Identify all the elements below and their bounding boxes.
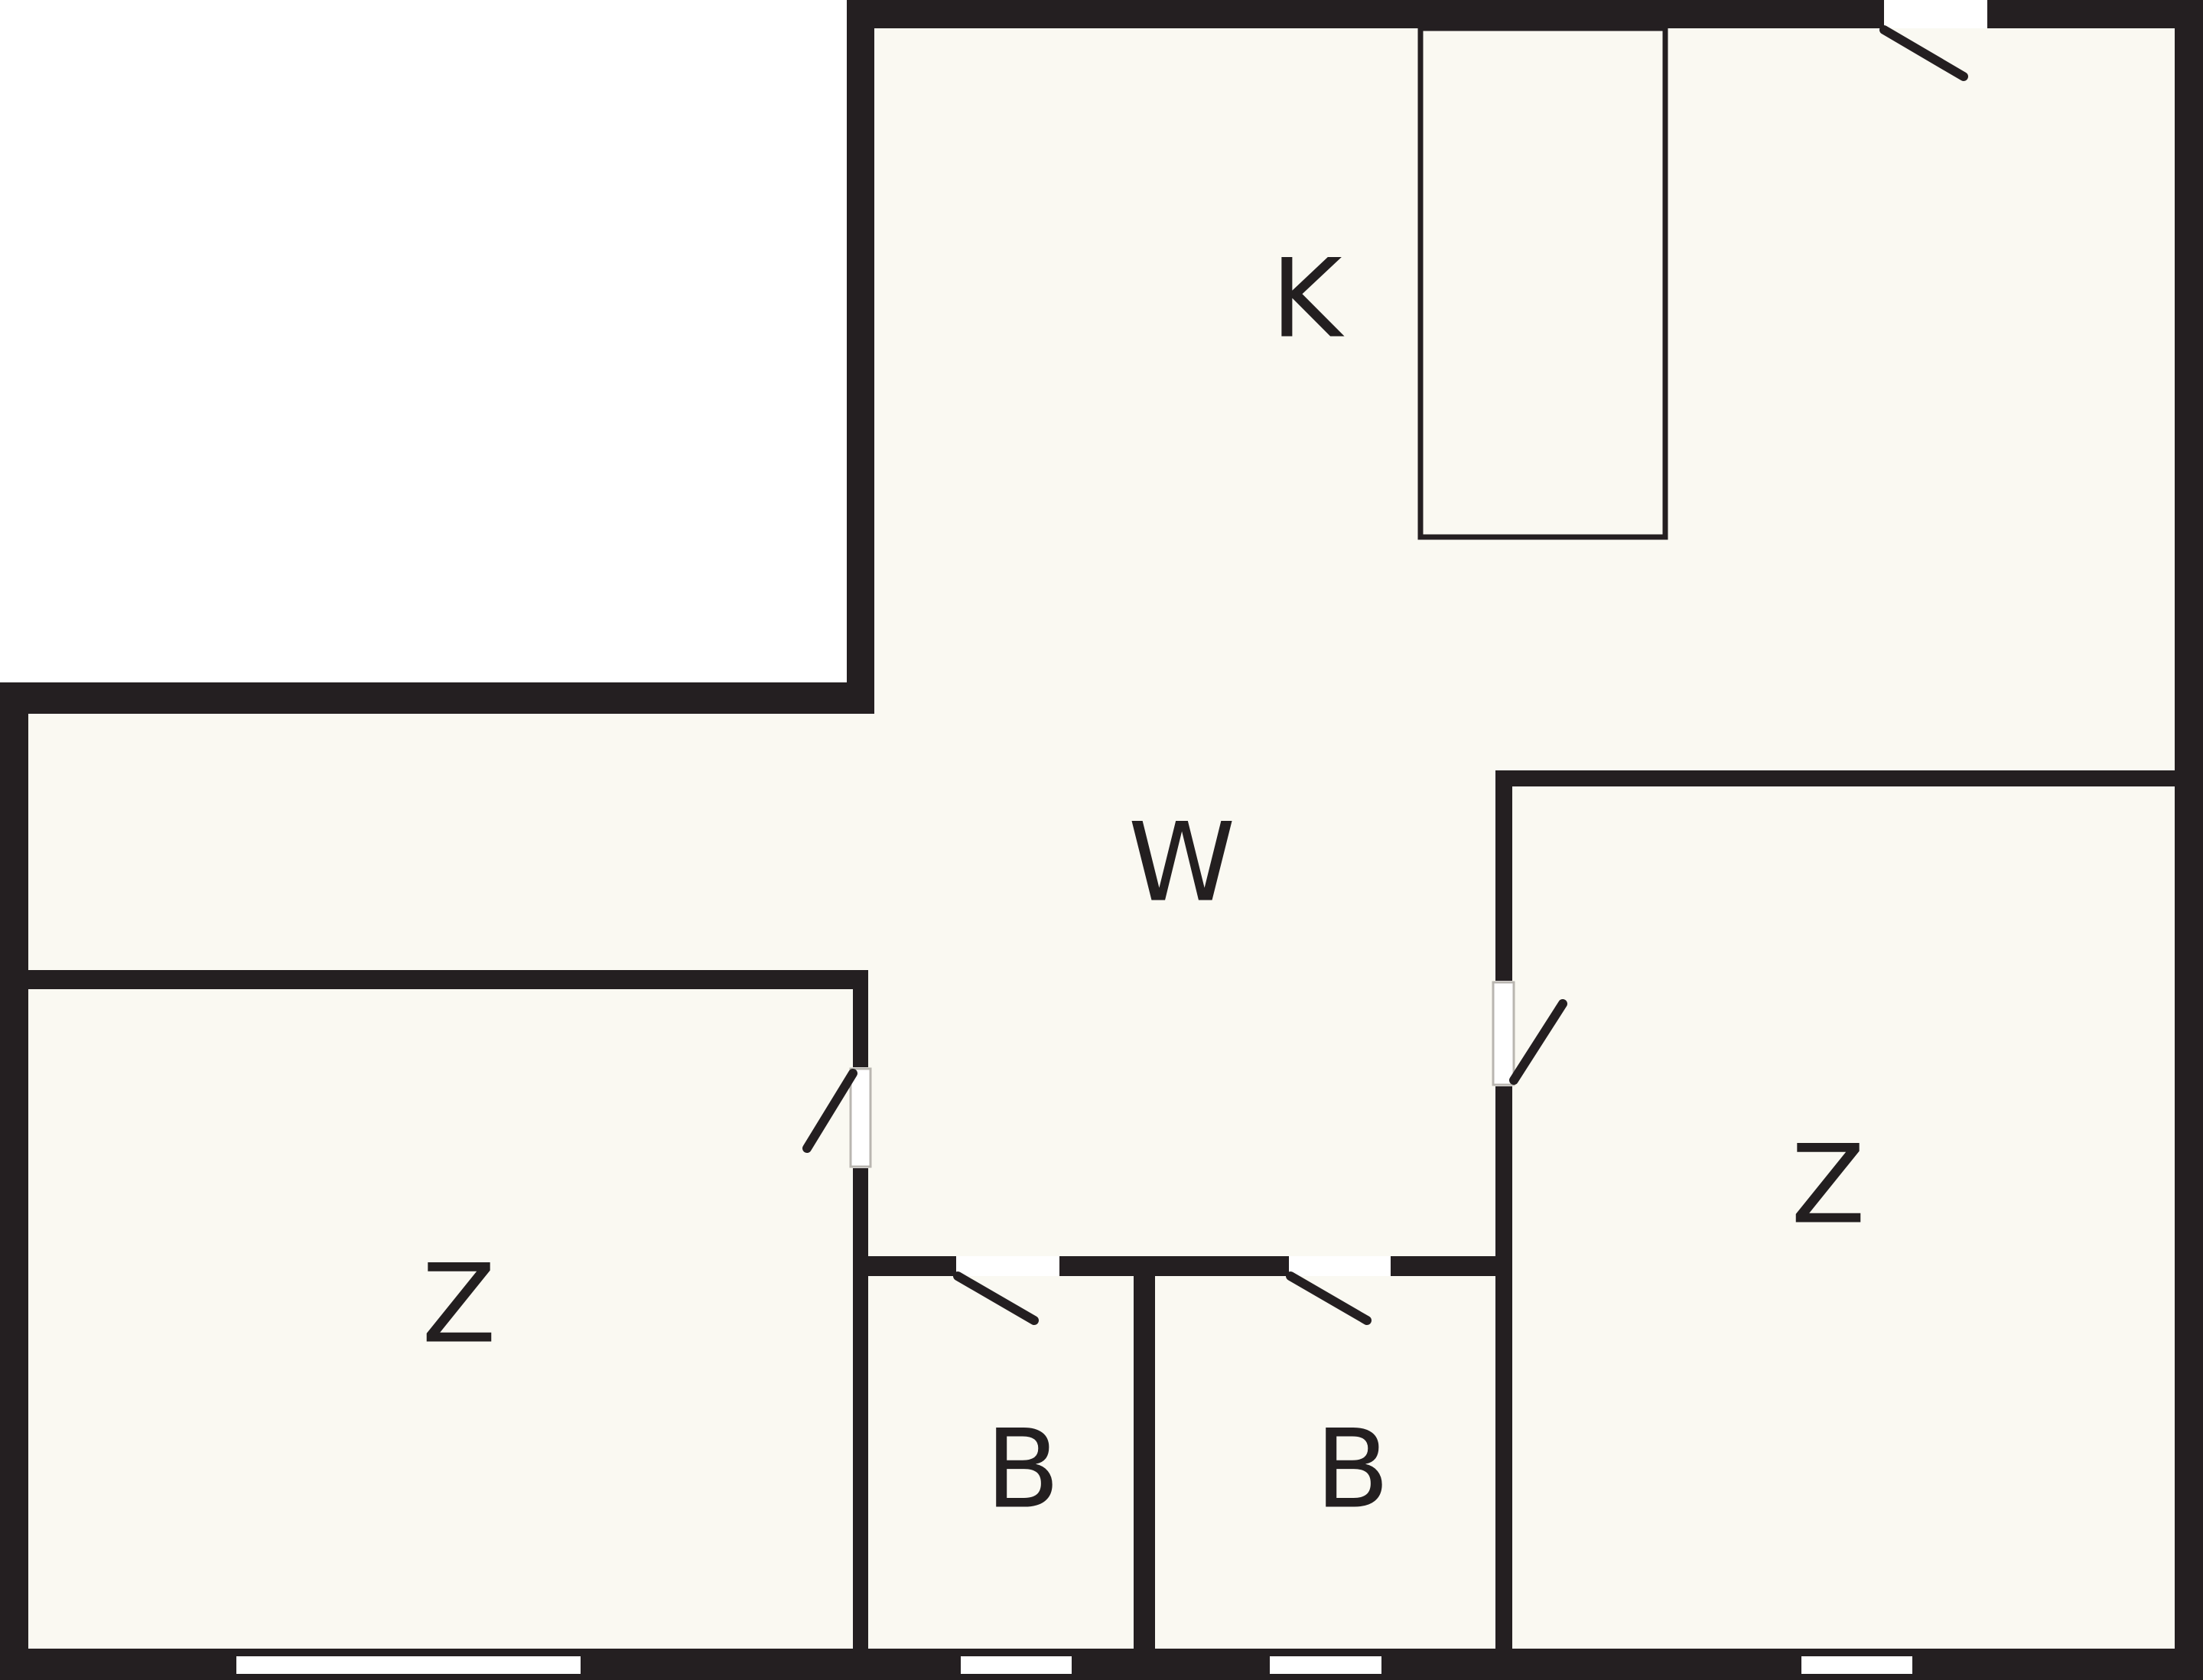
interior-east xyxy=(874,28,2175,1649)
left-wall xyxy=(0,682,28,1680)
bathright-window xyxy=(1270,1656,1381,1674)
bathleft-door-opening xyxy=(956,1256,1059,1276)
northwest-wall-v xyxy=(847,0,874,714)
room-label-bedroom-right: Z xyxy=(1791,1122,1865,1249)
room-label-bath-left: B xyxy=(985,1407,1059,1533)
bedroomright-door-leaf xyxy=(1493,982,1514,1085)
entrance-door-opening xyxy=(1884,0,1987,28)
bathleft-window xyxy=(961,1656,1072,1674)
bedroomright-window xyxy=(1801,1656,1912,1674)
interior-west xyxy=(28,714,874,1649)
right-wall xyxy=(2175,0,2203,1680)
room-label-kitchen: K xyxy=(1271,236,1345,363)
top-wall xyxy=(847,0,2203,28)
room-label-living: W xyxy=(1128,800,1235,926)
room-label-bath-right: B xyxy=(1315,1407,1389,1533)
hall-bedroomleft-wall xyxy=(28,970,868,989)
room-label-bedroom-left: Z xyxy=(421,1242,496,1368)
floor-plan: KWZBBZ xyxy=(0,0,2203,1680)
bedroomleft-window xyxy=(236,1656,581,1674)
bedroomright-left-wall xyxy=(1495,770,1512,1649)
bedroomright-top-wall xyxy=(1495,770,2175,786)
bath-divider-wall xyxy=(1134,1276,1155,1649)
bath-top-wall xyxy=(853,1256,1512,1276)
bathright-door-opening xyxy=(1289,1256,1391,1276)
floor-plan-svg: KWZBBZ xyxy=(0,0,2203,1680)
northwest-wall-h xyxy=(0,682,874,714)
bedroomleft-door-leaf xyxy=(851,1069,870,1167)
